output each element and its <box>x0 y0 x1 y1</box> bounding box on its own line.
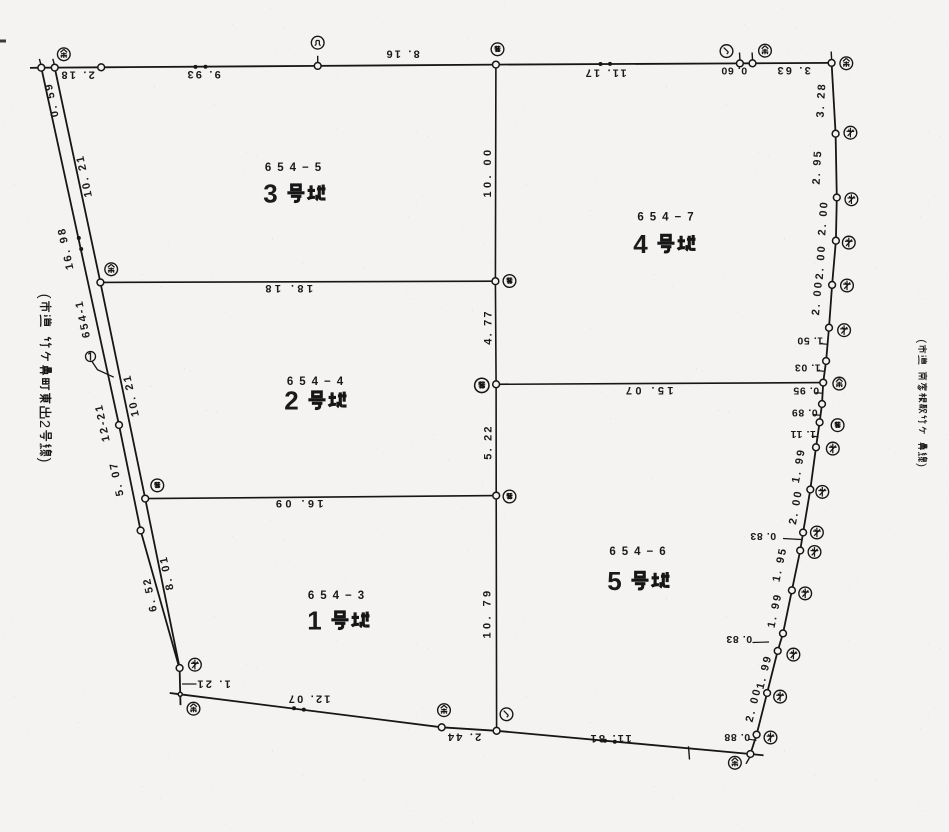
svg-text:5. 22: 5. 22 <box>483 424 495 459</box>
svg-text:1. 11: 1. 11 <box>790 428 816 440</box>
svg-text:2: 2 <box>36 420 52 428</box>
svg-text:0. 83: 0. 83 <box>726 633 752 645</box>
svg-text:2. 00: 2. 00 <box>814 244 828 280</box>
svg-text:5: 5 <box>607 566 621 596</box>
svg-text:9. 93: 9. 93 <box>185 68 220 80</box>
svg-text:1. 50: 1. 50 <box>797 335 823 347</box>
svg-text:(: ( <box>916 339 928 343</box>
svg-text:2. 44: 2. 44 <box>446 730 481 742</box>
svg-text:15. 07: 15. 07 <box>623 384 674 396</box>
svg-text:1. 03: 1. 03 <box>794 362 820 374</box>
svg-text:654−6: 654−6 <box>609 546 671 558</box>
svg-text:12. 07: 12. 07 <box>287 693 331 705</box>
svg-text:): ) <box>36 458 52 463</box>
svg-text:0. 83: 0. 83 <box>750 530 776 542</box>
svg-text:2: 2 <box>284 386 298 416</box>
svg-text:654−3: 654−3 <box>308 590 370 602</box>
svg-text:0. 89: 0. 89 <box>791 407 817 419</box>
svg-text:8. 16: 8. 16 <box>384 48 419 60</box>
svg-text:16. 09: 16. 09 <box>273 497 324 509</box>
svg-text:(: ( <box>36 294 52 299</box>
svg-text:3. 63: 3. 63 <box>775 64 810 76</box>
svg-text:1. 21: 1. 21 <box>195 677 230 689</box>
svg-text:): ) <box>916 463 928 467</box>
svg-text:2. 00: 2. 00 <box>816 200 830 236</box>
svg-text:0. 88: 0. 88 <box>724 731 750 743</box>
svg-text:10. 00: 10. 00 <box>482 147 494 198</box>
svg-text:1: 1 <box>307 606 321 636</box>
svg-text:654−5: 654−5 <box>265 162 327 174</box>
svg-text:3: 3 <box>263 179 277 209</box>
svg-text:11. 81: 11. 81 <box>588 732 631 744</box>
svg-text:0. 60: 0. 60 <box>721 65 747 77</box>
svg-text:10. 79: 10. 79 <box>482 588 494 639</box>
svg-text:4: 4 <box>633 229 648 259</box>
svg-text:654−7: 654−7 <box>637 212 699 224</box>
svg-text:11. 17: 11. 17 <box>583 67 626 79</box>
svg-text:3. 28: 3. 28 <box>815 82 829 118</box>
svg-text:4. 77: 4. 77 <box>483 309 495 344</box>
svg-text:2. 18: 2. 18 <box>59 69 94 81</box>
svg-text:0. 95: 0. 95 <box>793 385 819 397</box>
svg-text:18. 18: 18. 18 <box>262 282 313 294</box>
svg-text:2. 95: 2. 95 <box>811 149 825 185</box>
